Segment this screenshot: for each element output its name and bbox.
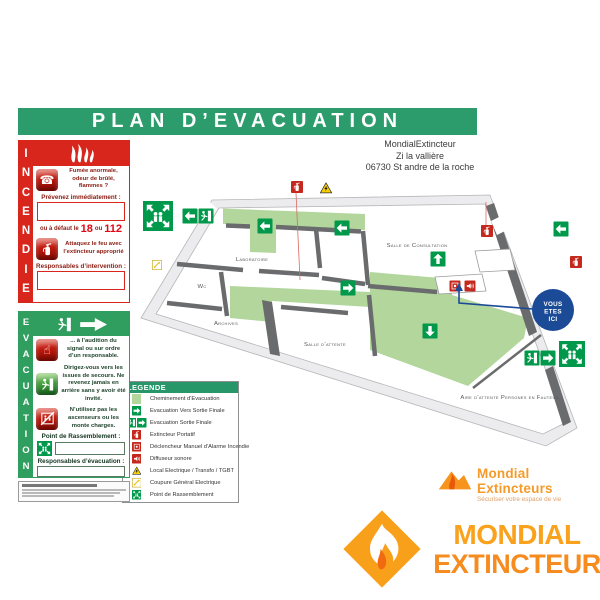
- room-label: Salle de Consultation: [387, 243, 448, 249]
- evacuation-panel: EVACUATION ☝ ... à l’audition du signal …: [18, 311, 130, 478]
- address-line: Zi la vallière: [330, 151, 510, 163]
- plan-assembly-icon: [143, 201, 173, 231]
- evacuation-rule2-text: Dirigez-vous vers les issues de secours.…: [61, 365, 126, 403]
- plan-exit-icon: [525, 351, 540, 366]
- flame-logo-icon: [340, 507, 424, 591]
- logo-line2: EXTINCTEUR: [432, 550, 600, 579]
- assembly-point-icon: [37, 441, 52, 456]
- assembly-point-row: [33, 440, 129, 457]
- sounder-icon: [132, 454, 142, 464]
- site-address: MondialExtincteur Zi la vallière 06730 S…: [330, 139, 510, 174]
- svg-text:ETES: ETES: [544, 309, 562, 316]
- write-in-box: [37, 271, 125, 290]
- number-18: 18: [81, 223, 93, 235]
- assembly-point-label: Point de Rassemblement :: [33, 433, 129, 440]
- plan-arrow-left-icon: [183, 209, 198, 224]
- legend-item: Extincteur Portatif: [123, 429, 238, 441]
- extinguisher-icon: [132, 430, 142, 440]
- brand-name: Mondial Extincteurs: [477, 466, 600, 496]
- no-elevator-icon: [36, 408, 58, 430]
- warning-triangle-icon: [132, 466, 142, 476]
- evacuation-rule2: Dirigez-vous vers les issues de secours.…: [33, 363, 129, 405]
- legend-item: Diffuseur sonore: [123, 453, 238, 465]
- room-label: Wc: [197, 284, 206, 290]
- legend-item: Déclencheur Manuel d’Alarme Incendie: [123, 441, 238, 453]
- incendie-step2: Attaquez le feu avec l’extincteur approp…: [33, 236, 129, 262]
- responsables-intervention-label: Responsables d’intervention :: [33, 263, 129, 270]
- arrow-right-icon: [137, 418, 147, 428]
- room-label: Salle d’attente: [304, 342, 346, 348]
- incendie-panel: INCENDIE ☎ Fumée anormale, odeur de brûl…: [18, 140, 130, 303]
- room-label: Laboratoire: [236, 257, 268, 263]
- legend-item: Cheminement d’Evacuation: [123, 393, 238, 405]
- incendie-banner: [33, 141, 129, 166]
- legend-item: Local Electrique / Transfo / TGBT: [123, 465, 238, 477]
- legend-title: LEGENDE: [123, 382, 238, 393]
- prevent-label: Prévenez immédiatement :: [33, 194, 129, 201]
- plan-sounder-icon: [465, 281, 476, 292]
- room-label: Aire d’attente Persones en Fauteuil: [460, 395, 560, 401]
- power-cut-icon: [132, 478, 142, 488]
- arrow-right-icon: [132, 406, 142, 416]
- fine-print-strip: [18, 481, 130, 502]
- incendie-step2-text: Attaquez le feu avec l’extincteur approp…: [61, 241, 126, 256]
- number-112: 112: [104, 223, 122, 235]
- legend-item: Coupure Général Electrique: [123, 477, 238, 489]
- page-title: PLAN D’EVACUATION: [92, 110, 403, 133]
- path-swatch-icon: [132, 394, 142, 404]
- plan-arrow-up-icon: [431, 252, 446, 267]
- flame-icon: [64, 143, 99, 164]
- evacuation-banner: [33, 312, 129, 336]
- plan-arrow-left-icon: [335, 221, 350, 236]
- plan-ext-icon: [291, 181, 303, 193]
- address-line: 06730 St andre de la roche: [330, 162, 510, 174]
- legend-panel: LEGENDE Cheminement d’Evacuation Evacuat…: [122, 381, 239, 503]
- plan-assembly-icon: [559, 341, 585, 367]
- signal-hand-icon: ☝: [36, 339, 58, 361]
- incendie-step1: ☎ Fumée anormale, odeur de brûlé, flamme…: [33, 166, 129, 193]
- fallback-or: ou: [95, 226, 102, 232]
- fallback-prefix: ou à défaut le: [40, 226, 79, 232]
- plan-arrow-right-icon: [541, 351, 556, 366]
- plan-ext-icon: [481, 225, 493, 237]
- brand-lockup-large: MONDIAL EXTINCTEUR: [340, 507, 600, 591]
- logo-line1: MONDIAL: [432, 520, 600, 550]
- exit-man-icon: [55, 315, 74, 334]
- assembly-point-icon: [132, 490, 142, 500]
- legend-item: Point de Rassemblement: [123, 489, 238, 501]
- legend-item: Evacuation Sortie Finale: [123, 417, 238, 429]
- brand-lockup-small: Mondial Extincteurs Sécuriser votre espa…: [437, 466, 600, 503]
- plan-exit-icon: [199, 209, 214, 224]
- room-label: Archives: [214, 321, 238, 327]
- plan-arrow-down-icon: [423, 324, 438, 339]
- plan-arrow-right-icon: [341, 281, 356, 296]
- exit-door-icon: [36, 373, 58, 395]
- plan-arrow-left-icon: [258, 219, 273, 234]
- evacuation-title: EVACUATION: [19, 312, 33, 477]
- plan-ext-icon: [570, 256, 582, 268]
- write-in-box: [37, 202, 125, 221]
- evacuation-rule3: N’utilisez pas les ascenseurs ou les mon…: [33, 405, 129, 432]
- plan-warning-icon: [320, 183, 331, 193]
- you-are-here-line: ETES: [544, 309, 562, 316]
- brand-mountain-flame-icon: [437, 466, 473, 493]
- evacuation-rule3-text: N’utilisez pas les ascenseurs ou les mon…: [61, 407, 126, 430]
- phone-alert-icon: ☎: [36, 169, 58, 191]
- address-line: MondialExtincteur: [330, 139, 510, 151]
- write-in-box: [55, 442, 125, 455]
- brand-tagline: Sécuriser votre espace de vie: [477, 496, 600, 503]
- evacuation-plan-poster: LaboratoireWcArchivesSalle de Consultati…: [0, 0, 600, 600]
- you-are-here-line: VOUS: [543, 301, 562, 308]
- extinguisher-icon: [36, 238, 58, 260]
- page-title-banner: PLAN D’EVACUATION: [18, 108, 477, 135]
- legend-item: Evacuation Vers Sortie Finale: [123, 405, 238, 417]
- evacuation-rule1-text: ... à l’audition du signal ou sur ordre …: [61, 338, 126, 361]
- manual-alarm-icon: [132, 442, 142, 452]
- evacuation-rule1: ☝ ... à l’audition du signal ou sur ordr…: [33, 336, 129, 363]
- write-in-box: [37, 466, 125, 477]
- you-are-here-line: ICI: [549, 316, 558, 323]
- plan-arrow-left-icon: [554, 222, 569, 237]
- plan-powercut-icon: [152, 260, 161, 269]
- arrow-right-icon: [80, 318, 108, 331]
- incendie-title: INCENDIE: [19, 141, 33, 302]
- emergency-numbers: ou à défaut le 18 ou 112: [33, 223, 129, 235]
- svg-text:ICI: ICI: [549, 316, 558, 323]
- incendie-step1-text: Fumée anormale, odeur de brûlé, flammes …: [61, 168, 126, 191]
- responsables-evacuation-label: Responsables d’évacuation :: [33, 458, 129, 465]
- svg-text:VOUS: VOUS: [543, 301, 562, 308]
